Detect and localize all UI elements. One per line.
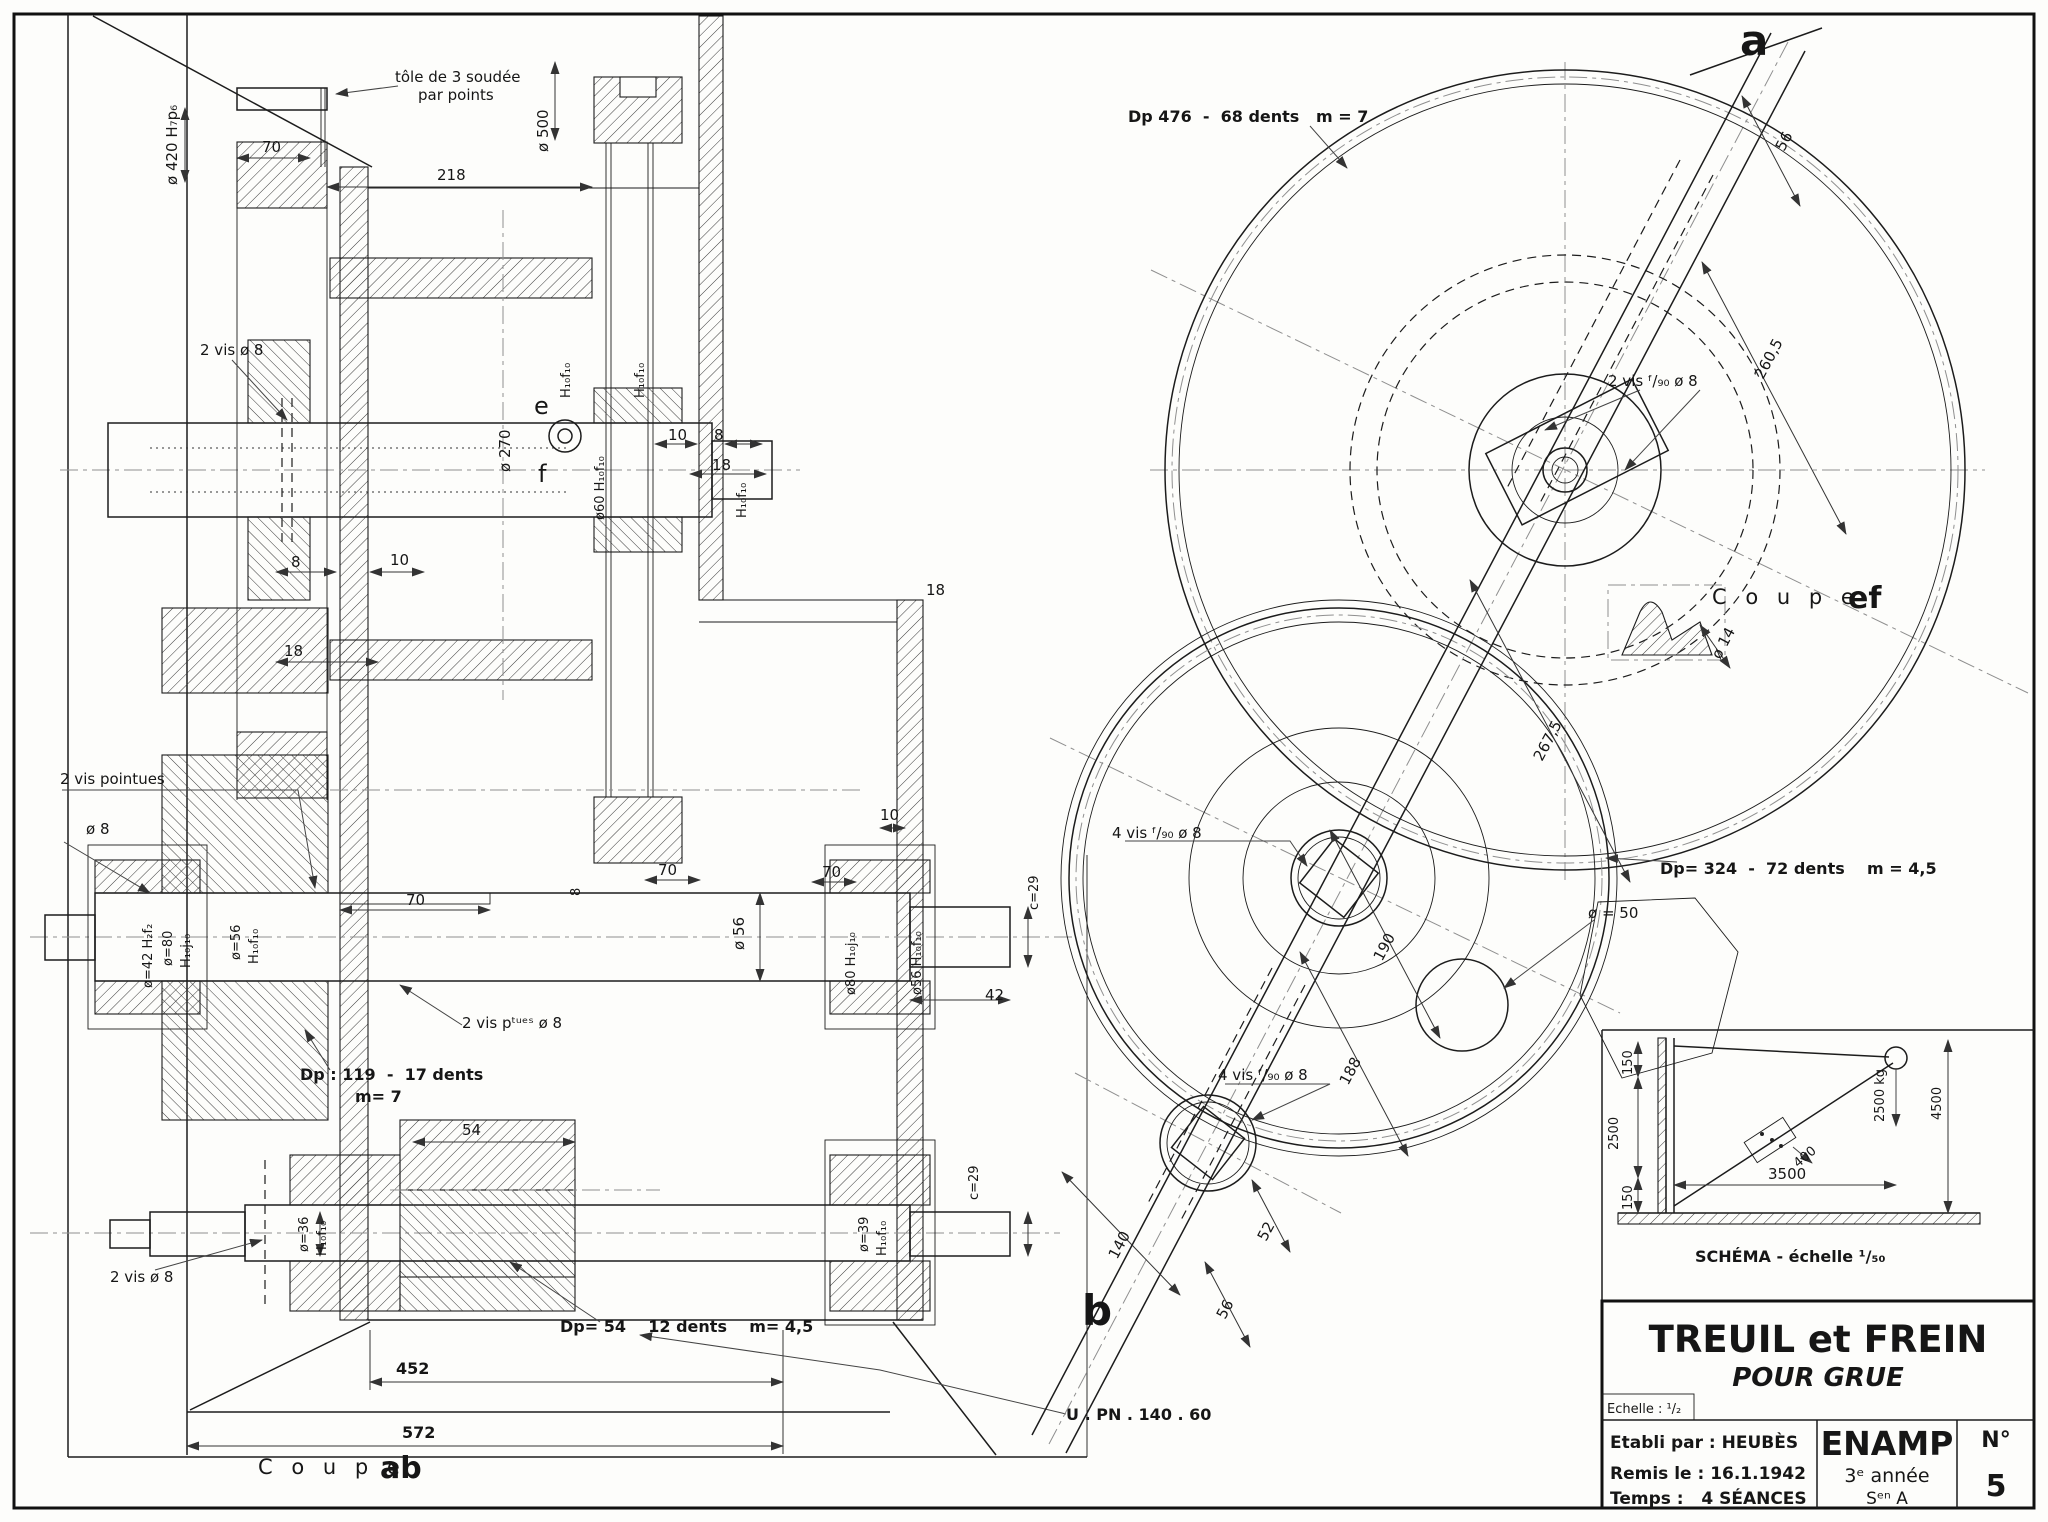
dim-270: ø 270 xyxy=(496,429,514,472)
dim-190: 190 xyxy=(1370,930,1399,964)
dim-452: 452 xyxy=(396,1359,429,1378)
fit-4: H₁₀f₁₀ xyxy=(247,929,262,964)
dim-260-5: 260,5 xyxy=(1751,336,1787,382)
label-upn: U . PN . 140 . 60 xyxy=(1066,1405,1211,1424)
fit-6: H₁₀f₁₀ xyxy=(875,1221,890,1256)
dim-188: 188 xyxy=(1336,1054,1365,1088)
dim-70b2: 70 xyxy=(406,891,425,909)
dim-56a: ø=56 xyxy=(229,925,244,960)
title-block: TREUIL et FREIN POUR GRUE Echelle : ¹/₂ … xyxy=(1602,1301,2034,1509)
dim-218: 218 xyxy=(437,166,466,184)
dim-w8a: 8 xyxy=(291,553,301,571)
treuil-et-frein-drawing: tôle de 3 soudée par points ø 420 H₇p₆ 7… xyxy=(0,0,2048,1522)
label-visp-2: ø 8 xyxy=(86,820,110,838)
label-vis-ptues: 2 vis pᵗᵘᵉˢ ø 8 xyxy=(462,1014,562,1032)
dim-267-5: 267,5 xyxy=(1530,718,1566,764)
label-coupe-ef: C o u p e xyxy=(1712,585,1860,609)
label-vis4a: 4 vis ᶠ/₉₀ ø 8 xyxy=(1112,824,1202,842)
school-section: Sᵉⁿ A xyxy=(1866,1489,1908,1509)
label-coupe-ef-letters: ef xyxy=(1848,581,1882,616)
label-f: f xyxy=(538,460,547,488)
label-vis2a: 2 vis ø 8 xyxy=(200,341,263,359)
schema-caption: SCHÉMA - échelle ¹/₅₀ xyxy=(1695,1247,1886,1266)
schema-inset: 150 2500 150 3500 400 2500 kg 4500 SCHÉM… xyxy=(1602,1030,2034,1301)
dim-w10a: 10 xyxy=(390,551,409,569)
dim-w8b: 8 xyxy=(714,426,724,444)
dim-w18a: 18 xyxy=(284,642,303,660)
dim-60: ø60 H₁₀f₁₀ xyxy=(593,456,608,520)
label-section-b: b xyxy=(1082,1286,1112,1335)
label-dp119: Dp : 119 - 17 dents xyxy=(300,1065,483,1084)
schema-dim-4500: 4500 xyxy=(1930,1087,1945,1120)
right-view-geometry xyxy=(1032,28,2028,1453)
label-dp54: Dp= 54 12 dents m= 4,5 xyxy=(560,1317,813,1336)
dim-k8: 8 xyxy=(569,888,584,896)
dim-56b: ø 56 xyxy=(730,917,748,950)
fit-1: H₁₀f₁₀ xyxy=(559,363,574,398)
label-dp476: Dp 476 - 68 dents m = 7 xyxy=(1128,107,1368,126)
fit-j10: H₁₀j₁₀ xyxy=(179,934,194,968)
dim-w18b: 18 xyxy=(712,456,731,474)
dim-c29b: c=29 xyxy=(967,1165,982,1200)
schema-dim-2500kg: 2500 kg xyxy=(1873,1069,1888,1122)
dim-500: ø 500 xyxy=(534,109,552,152)
label-dp119-m: m= 7 xyxy=(355,1087,402,1106)
dim-42b: 42 xyxy=(985,986,1004,1004)
label-vis2b: 2 vis ø 8 xyxy=(110,1268,173,1286)
schema-dim-2500: 2500 xyxy=(1607,1117,1622,1150)
dim-70a: 70 xyxy=(262,138,281,156)
lower-shaft-assembly xyxy=(30,1120,1066,1454)
schema-dim-150a: 150 xyxy=(1621,1050,1636,1075)
dim-80a: ø=80 xyxy=(161,931,176,966)
label-visp-1: 2 vis pointues xyxy=(60,770,165,788)
right-view-labels: a b Dp 476 - 68 dents m = 7 56 2 vis ᶠ/₉… xyxy=(1082,16,1937,1335)
label-e: e xyxy=(534,392,549,420)
date-row: Remis le : 16.1.1942 xyxy=(1610,1464,1806,1484)
dim-80b: ø80 H₁₀j₁₀ xyxy=(844,932,859,995)
schema-dim-150b: 150 xyxy=(1621,1185,1636,1210)
scale-note: Echelle : ¹/₂ xyxy=(1607,1402,1681,1417)
dim-56c: ø56 H₁₀f₁₀ xyxy=(910,931,925,995)
fit-3: H₁₀f₁₀ xyxy=(735,483,750,518)
dim-50: ø = 50 xyxy=(1588,904,1638,922)
dim-56s: 56 xyxy=(1213,1297,1238,1322)
author-row: Etabli par : HEUBÈS xyxy=(1610,1431,1798,1453)
sheet-number: 5 xyxy=(1986,1469,2007,1504)
label-coupe-ab-letters: ab xyxy=(380,1451,422,1486)
dim-70d: 70 xyxy=(822,863,841,881)
label-vis4b: 4 vis ᶠ/₉₀ ø 8 xyxy=(1218,1066,1308,1084)
dim-54: 54 xyxy=(462,1121,481,1139)
dim-14: ø 14 xyxy=(1708,624,1739,662)
sheet-number-label: N° xyxy=(1981,1428,2010,1453)
label-tole-2: par points xyxy=(418,86,494,104)
fit-2: H₁₀f₁₀ xyxy=(633,363,648,398)
label-dp324: Dp= 324 - 72 dents m = 4,5 xyxy=(1660,859,1937,878)
sheet-subtitle: POUR GRUE xyxy=(1732,1363,1904,1393)
dim-w10b: 10 xyxy=(668,426,687,444)
dim-39: ø=39 xyxy=(857,1217,872,1252)
fit-5: H₁₀f₁₀ xyxy=(315,1221,330,1256)
dim-w10c: 10 xyxy=(880,806,899,824)
time-row: Temps : 4 SÉANCES xyxy=(1610,1487,1807,1509)
school-year: 3ᵉ année xyxy=(1844,1465,1929,1487)
dim-420: ø 420 H₇p₆ xyxy=(163,105,181,185)
drawing-sheet: tôle de 3 soudée par points ø 420 H₇p₆ 7… xyxy=(0,0,2048,1522)
sheet-title: TREUIL et FREIN xyxy=(1649,1318,1988,1361)
dim-36: ø=36 xyxy=(297,1217,312,1252)
school-name: ENAMP xyxy=(1821,1424,1954,1463)
fit-42: ø=42 H₂f₂ xyxy=(141,924,156,988)
label-tole-1: tôle de 3 soudée xyxy=(395,68,521,86)
label-section-a: a xyxy=(1740,16,1768,65)
dim-70c: 70 xyxy=(658,861,677,879)
dim-w18c: 18 xyxy=(926,581,945,599)
dim-572: 572 xyxy=(402,1423,435,1442)
dim-c29a: c=29 xyxy=(1027,875,1042,910)
label-vis2c: 2 vis ᶠ/₉₀ ø 8 xyxy=(1608,372,1698,390)
dim-140: 140 xyxy=(1105,1228,1134,1262)
